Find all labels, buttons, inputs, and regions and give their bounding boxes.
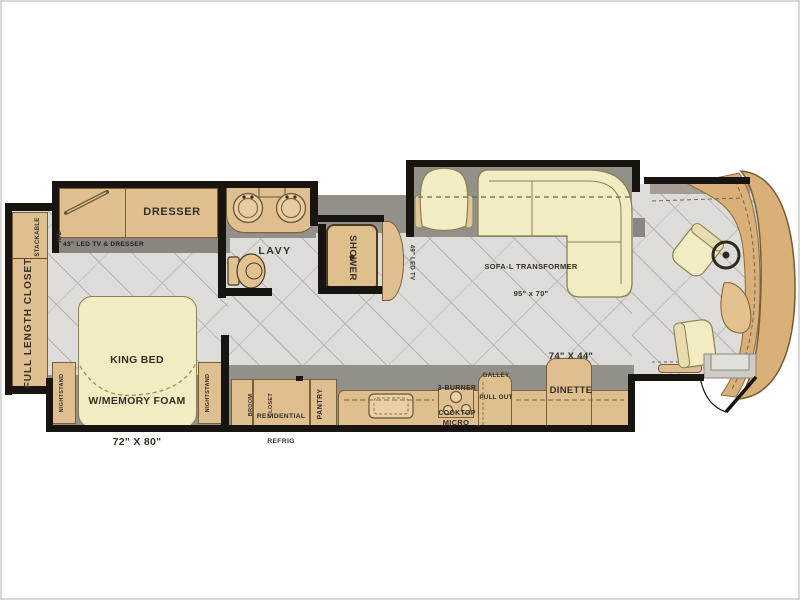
dresser-label: DRESSER [127, 206, 217, 219]
wall-bath-divider [218, 181, 226, 298]
wall-cab-top [644, 177, 750, 184]
wall-sofa-slide-left [406, 160, 414, 237]
rv-floor-plan: DRESSER 43" LED TV & DRESSER STACKABLE W… [0, 0, 800, 600]
wall-bottom-main [628, 374, 704, 381]
dresser-divider [125, 188, 126, 238]
wall-dresser-slide-top [52, 181, 232, 188]
cab-step-trim [658, 364, 702, 373]
wall-sofa-slide-right [632, 160, 640, 192]
wall-bath-top [316, 215, 384, 222]
bath-vanity [226, 185, 316, 233]
wall-kitchen-slide-right [628, 374, 635, 432]
sofa-slideout-floor [414, 165, 632, 237]
cab-wall-depth-strip [650, 184, 750, 194]
full-length-closet-label: FULL LENGTH CLOSET [23, 238, 37, 408]
king-bed-label: KING BED W/MEMORY FOAM 72" X 80" [77, 327, 197, 477]
sofa-label: SOFA-L TRANSFORMER 95" x 70" [461, 244, 601, 316]
wall-vanity-top [226, 181, 318, 188]
wall-toilet-bottom [218, 288, 272, 296]
shower-label: SHOWER [346, 226, 358, 290]
lavy-label: LAVY [245, 245, 305, 258]
led-tv-49-label: 49" LED TV [406, 236, 415, 290]
nightstand-right-label: NIGHTSTAND [205, 362, 215, 424]
wall-bedroom-kitchen-divider [221, 335, 229, 432]
wall-bed-slide-left [46, 378, 53, 432]
pantry-label: PANTRY [317, 374, 329, 434]
wall-sofa-slide-top [406, 160, 640, 167]
wall-rear [5, 203, 12, 395]
dinette-label: 74" X 44" DINETTE [521, 328, 621, 419]
tv-dresser-label: 43" LED TV & DRESSER [63, 241, 217, 249]
entry-door [700, 377, 756, 412]
wall-shower-left [318, 224, 326, 292]
slide-end-cabinet [633, 218, 645, 237]
micro-label: MICRO [426, 418, 486, 427]
cab-floor [632, 184, 760, 378]
nightstand-left-label: NIGHTSTAND [59, 362, 69, 424]
broom-closet-label: BROOM CLOSET [235, 379, 249, 431]
